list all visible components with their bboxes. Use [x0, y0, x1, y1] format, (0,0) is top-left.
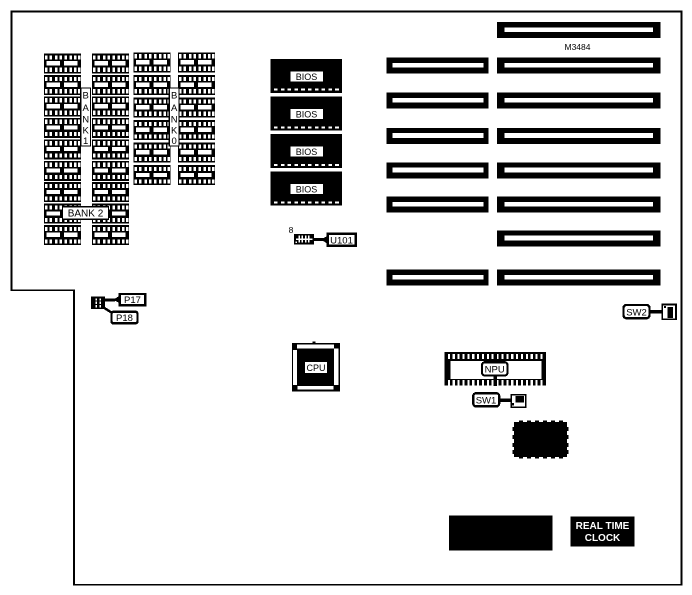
svg-text:B: B: [83, 91, 89, 102]
svg-text:M3484: M3484: [565, 42, 591, 52]
svg-text:SW1: SW1: [476, 396, 497, 407]
svg-text:BANK 2: BANK 2: [68, 209, 104, 220]
svg-text:A: A: [83, 103, 90, 114]
svg-text:A: A: [171, 103, 178, 114]
svg-text:8: 8: [289, 225, 294, 235]
svg-text:P17: P17: [124, 295, 141, 306]
svg-text:U101: U101: [330, 235, 353, 246]
svg-text:K: K: [171, 125, 178, 136]
svg-text:CLOCK: CLOCK: [585, 533, 621, 544]
svg-text:0: 0: [172, 136, 177, 147]
svg-text:N: N: [82, 114, 89, 125]
svg-text:1: 1: [83, 136, 88, 147]
svg-text:P18: P18: [116, 313, 133, 324]
svg-text:SW2: SW2: [626, 307, 647, 318]
svg-text:N: N: [171, 114, 178, 125]
svg-text:NPU: NPU: [485, 364, 505, 375]
svg-text:B: B: [171, 91, 177, 102]
svg-text:K: K: [83, 125, 90, 136]
svg-text:CPU: CPU: [306, 363, 325, 373]
svg-text:REAL TIME: REAL TIME: [576, 521, 630, 532]
